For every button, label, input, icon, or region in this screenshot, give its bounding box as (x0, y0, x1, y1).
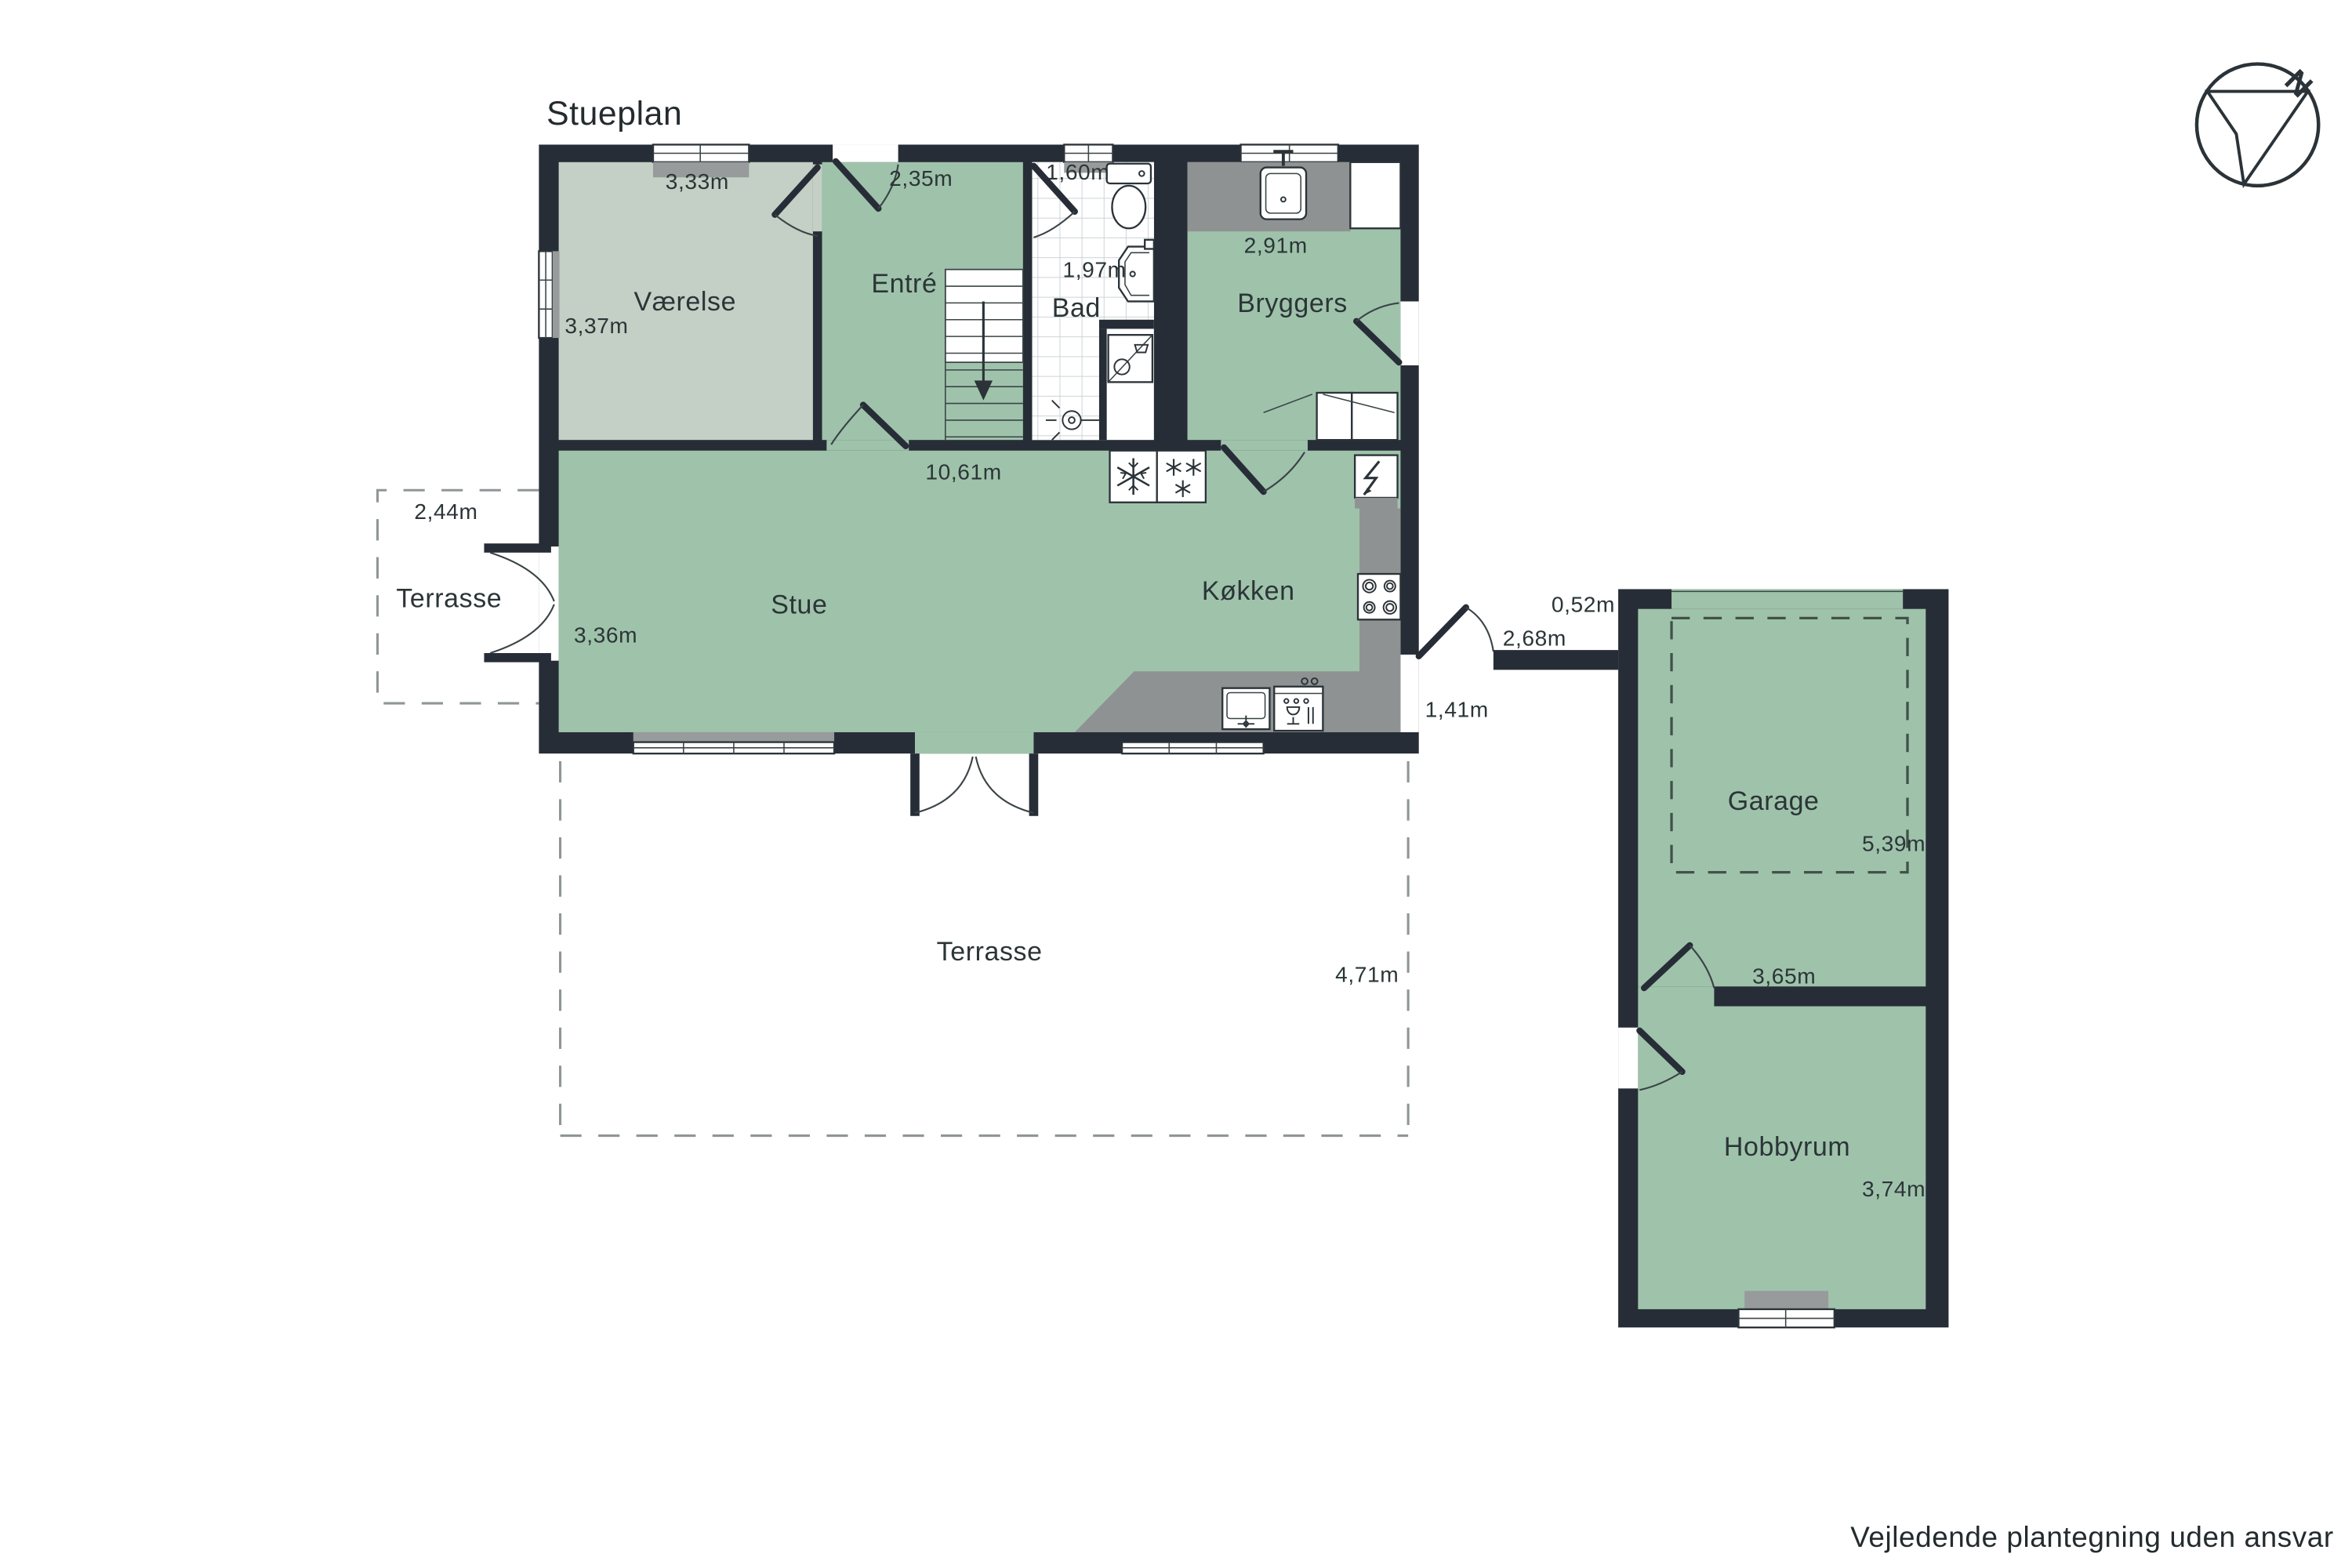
garage-width: 3,65m (1752, 964, 1816, 988)
vaerelse-width: 3,33m (666, 169, 729, 194)
stue-label: Stue (771, 590, 827, 620)
terrace-south-label: Terrasse (937, 937, 1043, 967)
kitchen-sink-icon (1222, 688, 1269, 729)
bad-width: 1,60m (1046, 160, 1109, 184)
hobbyrum-west-door-opening (1618, 1028, 1638, 1089)
front-door-opening (833, 144, 898, 162)
bad-tiles-lower (1033, 320, 1099, 440)
bryggers-kokken-opening (1221, 440, 1308, 451)
bryggers-counter (1188, 151, 1401, 231)
stue-kokken-width: 10,61m (925, 460, 1001, 485)
entrance-side-measure: 1,41m (1425, 698, 1489, 722)
window-bryggers-north (1241, 144, 1338, 162)
kokken-exterior-door-opening (1400, 655, 1418, 732)
entre-width: 2,35m (889, 166, 953, 191)
page-title: Stueplan (546, 95, 682, 132)
electrical-panel-icon (1355, 456, 1397, 509)
main-house: Bad 1,60m 1,97m Bryggers 2,91m (484, 144, 1493, 815)
stue-west-door-opening (539, 546, 558, 661)
garage-label: Garage (1728, 786, 1820, 816)
bryggers-width: 2,91m (1244, 233, 1308, 257)
window-vaerelse-west (539, 251, 559, 338)
dishwasher-icon (1274, 678, 1323, 731)
garage-depth: 5,39m (1862, 831, 1926, 855)
entre-stue-opening (826, 440, 909, 451)
bryggers-label: Bryggers (1237, 289, 1348, 318)
floor-plan: Stueplan 2,44m Terrasse Terrasse 4,71m (0, 0, 2352, 1568)
entre-label: Entré (871, 269, 937, 299)
stue-south-door-opening (915, 732, 1033, 753)
hobbyrum-depth: 3,74m (1862, 1177, 1926, 1201)
bad-niche-wall-h (1099, 320, 1154, 329)
stove-icon (1358, 574, 1400, 619)
passage-wall (1494, 650, 1618, 670)
passage-top-measure: 0,52m (1552, 593, 1615, 617)
hobbyrum-label: Hobbyrum (1724, 1132, 1850, 1162)
bryggers-exterior-door-opening (1400, 301, 1418, 365)
window-hobbyrum-south (1738, 1291, 1834, 1328)
bad-depth: 1,97m (1063, 257, 1127, 281)
terrace-west-label: Terrasse (396, 584, 502, 614)
garage-building: Garage 5,39m 3,65m Hobbyrum 3,74m (1618, 589, 1948, 1327)
window-kokken-south (1122, 742, 1264, 754)
terrace-south-depth: 4,71m (1335, 962, 1399, 986)
stue-depth: 3,36m (574, 622, 637, 647)
disclaimer: Vejledende plantegning uden ansvar (1850, 1521, 2333, 1553)
fridge-icon (1110, 451, 1157, 503)
terrace-west-width: 2,44m (414, 499, 477, 524)
garage-hobby-opening (1638, 986, 1714, 1006)
bad-niche-wall-v (1099, 328, 1107, 440)
passage-wall-measure: 2,68m (1503, 626, 1566, 650)
vaerelse-label: Værelse (633, 287, 736, 317)
vaerelse-depth: 3,37m (564, 314, 628, 338)
freezer-icon (1157, 451, 1206, 503)
window-stue-south (633, 732, 834, 753)
washing-machine-icon (1109, 335, 1152, 382)
bad-label: Bad (1052, 293, 1101, 323)
garage-door-opening (1671, 589, 1903, 608)
kokken-label: Køkken (1202, 576, 1295, 606)
